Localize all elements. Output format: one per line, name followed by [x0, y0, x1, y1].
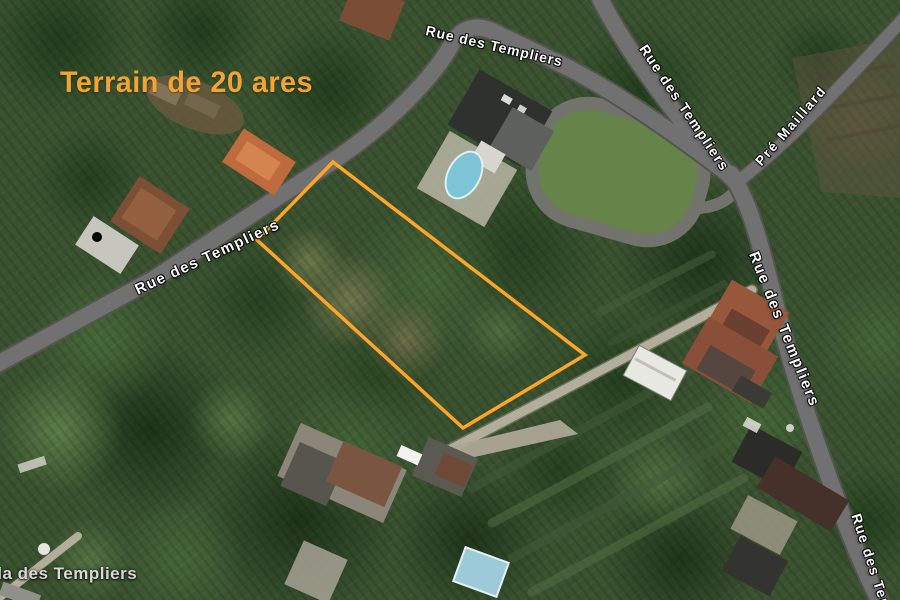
white-dome [92, 232, 102, 242]
white-car [397, 445, 423, 465]
satellite-map-canvas: Rue des Templiers Rue des Templiers Pré … [0, 0, 900, 600]
loop-driveway [520, 91, 736, 253]
parcel-side-driveway [426, 290, 752, 462]
estate-top-center [417, 69, 555, 227]
place-label-villa-des-templiers: lla des Templiers [0, 564, 137, 584]
swimming-pool-south [453, 547, 509, 597]
houses-bottom-right [722, 417, 849, 597]
driveways [0, 290, 798, 600]
page-title: Terrain de 20 ares [60, 66, 313, 100]
